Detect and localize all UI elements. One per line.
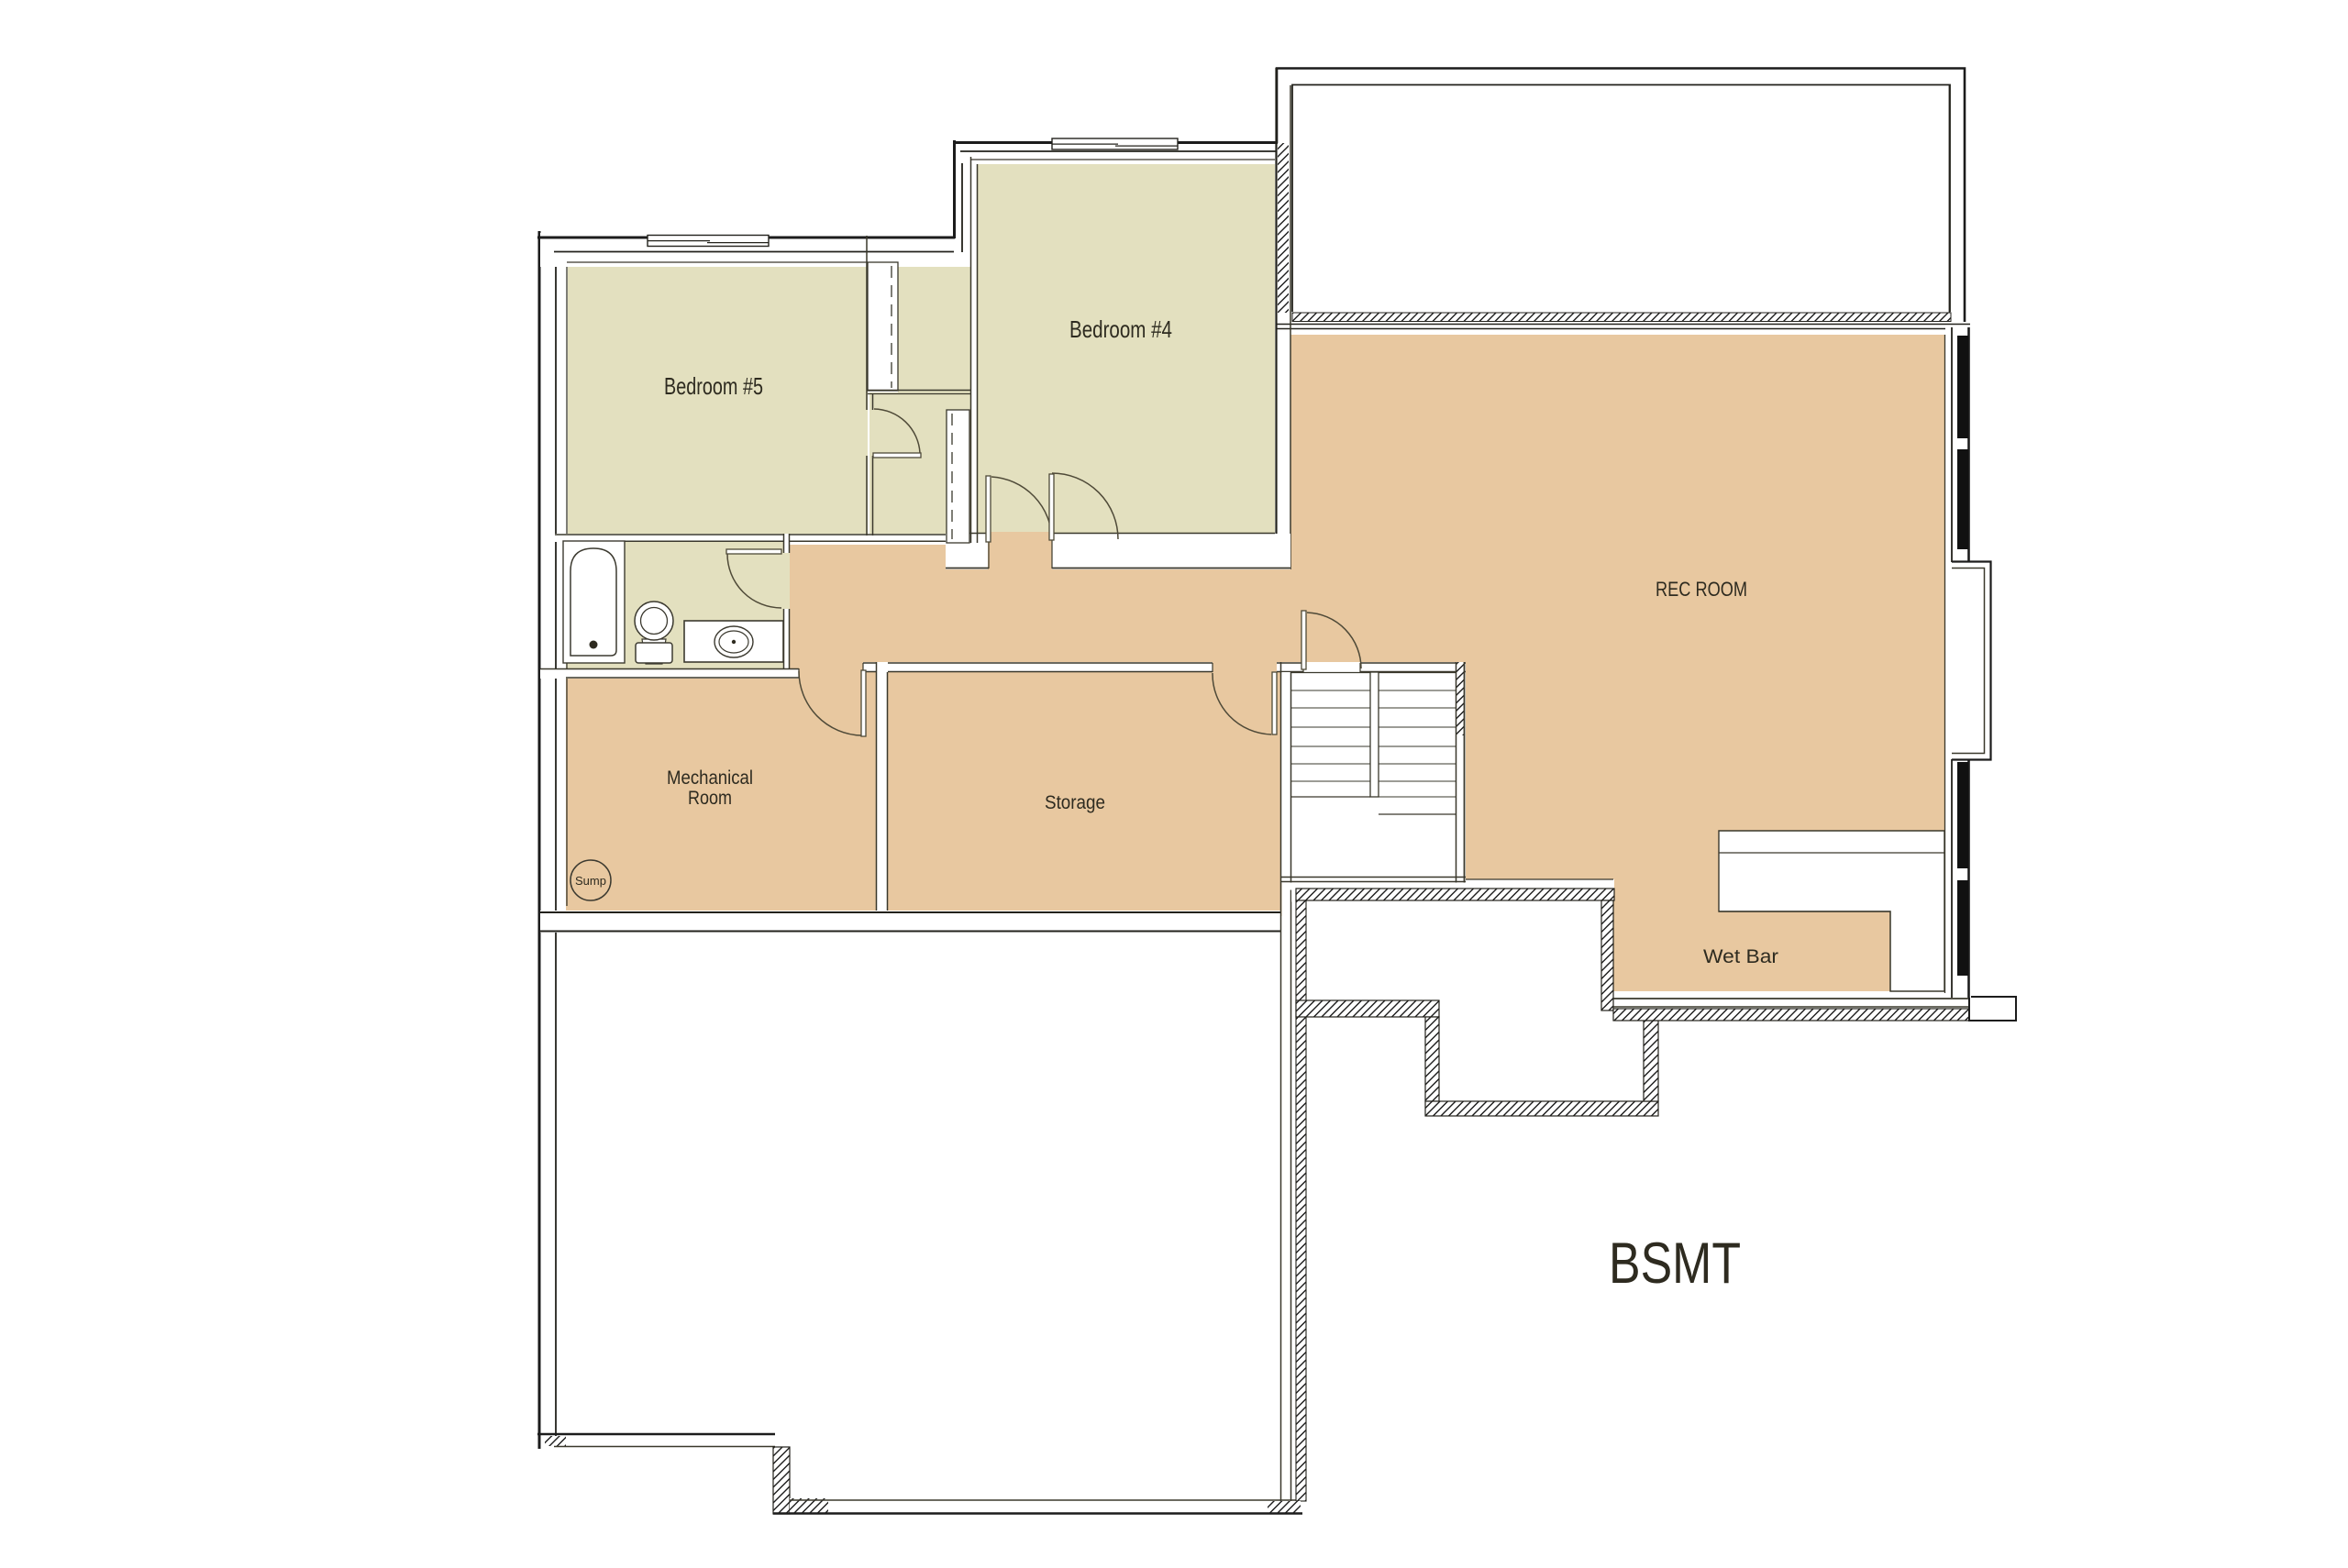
svg-text:Sump: Sump <box>575 874 606 888</box>
svg-text:Bedroom #5: Bedroom #5 <box>664 372 763 400</box>
svg-text:REC ROOM: REC ROOM <box>1656 578 1747 601</box>
svg-text:Bedroom #4: Bedroom #4 <box>1069 315 1172 343</box>
svg-text:Mechanical: Mechanical <box>667 767 753 789</box>
svg-text:BSMT: BSMT <box>1609 1231 1741 1296</box>
svg-text:Storage: Storage <box>1045 792 1105 813</box>
svg-text:Room: Room <box>688 788 732 809</box>
svg-text:Wet Bar: Wet Bar <box>1703 945 1778 967</box>
